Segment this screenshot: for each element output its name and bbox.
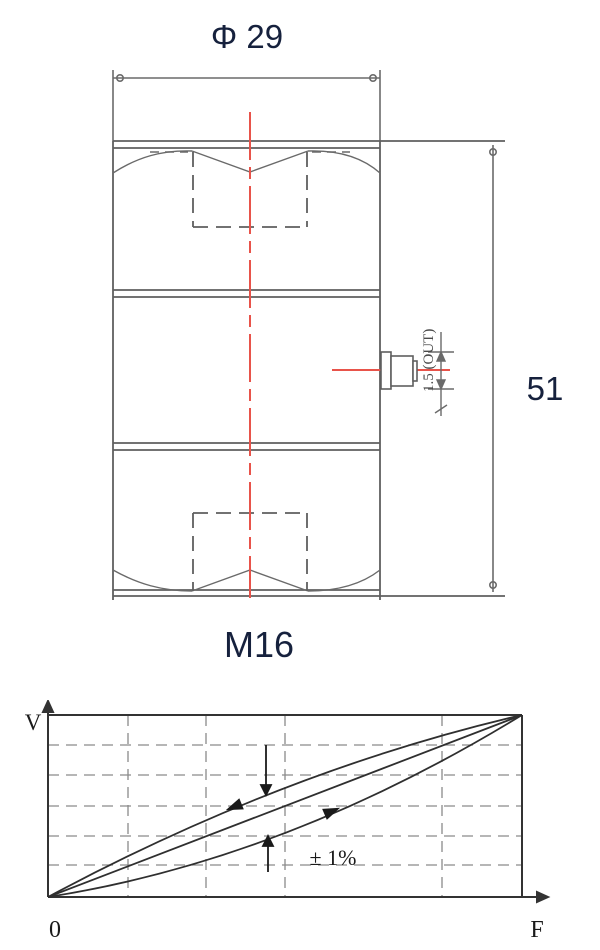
cable-connector bbox=[381, 352, 417, 389]
y-axis-label: V bbox=[25, 710, 42, 735]
tolerance-label: ± 1% bbox=[310, 845, 357, 870]
top-seat-profile bbox=[113, 151, 380, 173]
tolerance-arrows bbox=[261, 745, 273, 872]
diameter-dimension-label: Φ 29 bbox=[211, 18, 283, 55]
response-graph: V 0 F ± 1% bbox=[0, 700, 600, 950]
bottom-seat-profile bbox=[113, 570, 380, 591]
height-dimension-line bbox=[490, 145, 496, 592]
x-axis-label: F bbox=[530, 917, 543, 943]
height-dimension-label: 51 bbox=[527, 370, 564, 407]
origin-label: 0 bbox=[49, 917, 61, 943]
thread-size-label: M16 bbox=[224, 624, 294, 665]
diameter-dimension-line bbox=[113, 70, 380, 141]
cable-out-label: 1.5 (OUT) bbox=[421, 329, 437, 392]
part-drawing: Φ 29 bbox=[0, 0, 600, 700]
technical-drawing-page: Φ 29 bbox=[0, 0, 600, 950]
